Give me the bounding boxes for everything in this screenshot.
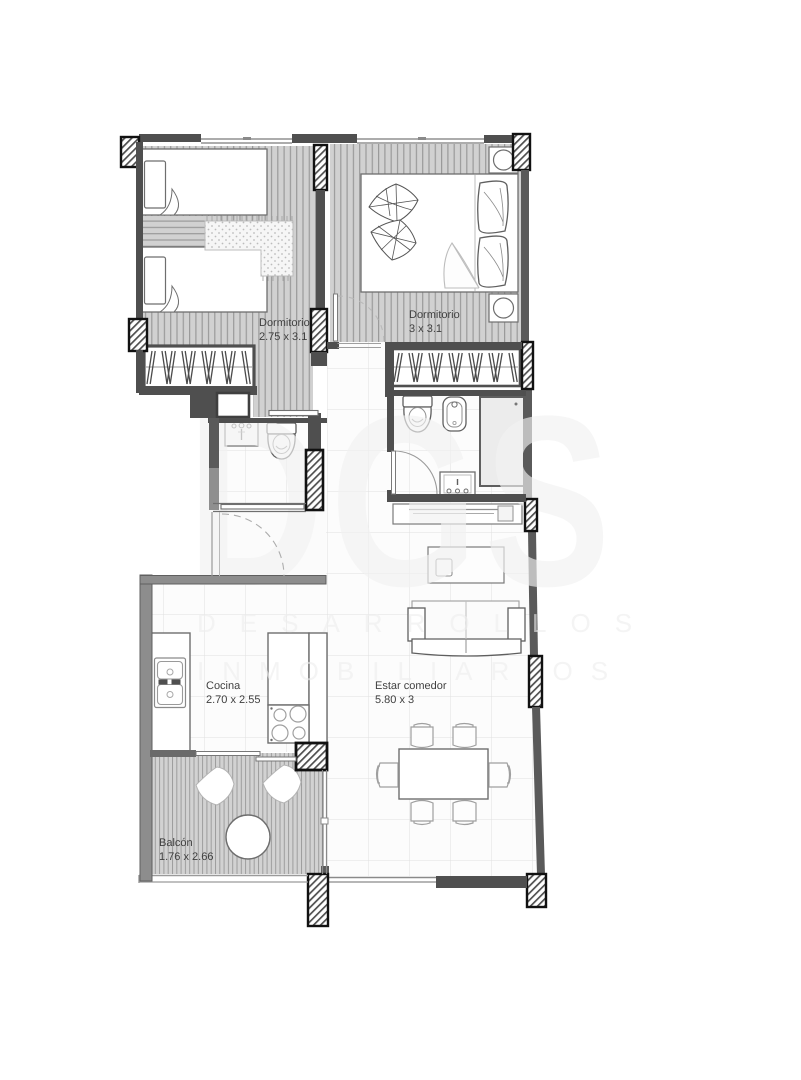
svg-text:2.75 x 3.1: 2.75 x 3.1 (259, 331, 307, 343)
svg-text:Dormitorio: Dormitorio (259, 317, 310, 329)
svg-text:2.70 x 2.55: 2.70 x 2.55 (206, 694, 260, 706)
svg-text:Estar comedor: Estar comedor (375, 680, 447, 692)
svg-text:3 x 3.1: 3 x 3.1 (409, 323, 442, 335)
svg-text:DESARROLLOS: DESARROLLOS (197, 608, 656, 638)
svg-text:Dormitorio: Dormitorio (409, 309, 460, 321)
svg-text:5.80 x 3: 5.80 x 3 (375, 694, 414, 706)
svg-text:1.76 x 2.66: 1.76 x 2.66 (159, 851, 213, 863)
svg-text:Cocina: Cocina (206, 680, 241, 692)
svg-text:Balcón: Balcón (159, 837, 193, 849)
